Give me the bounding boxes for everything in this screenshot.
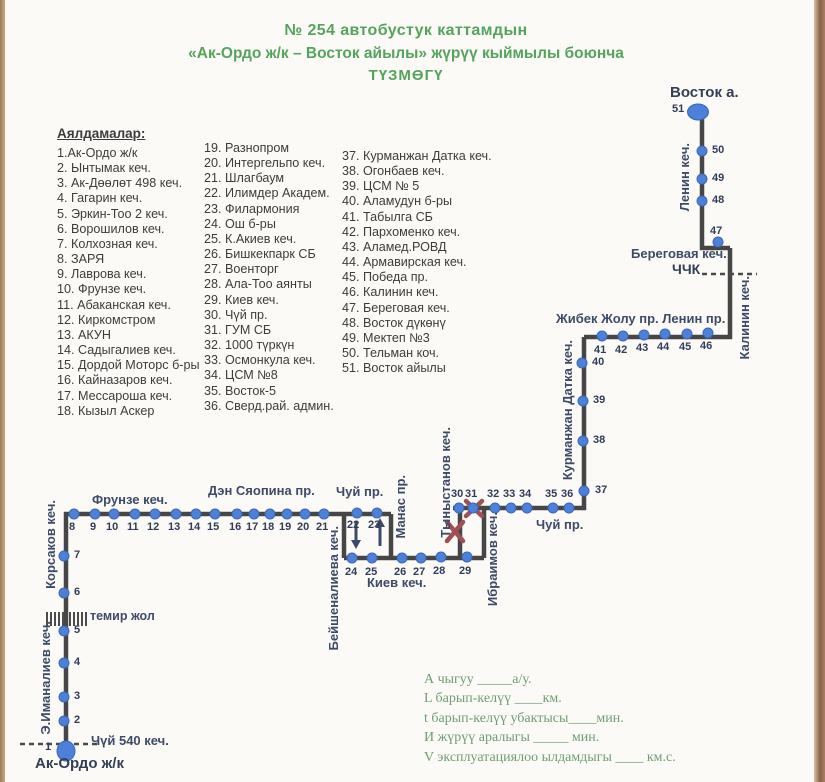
stop-dot-7 xyxy=(59,551,70,562)
street-label: Чуй пр. xyxy=(536,517,583,532)
stop-dot-10 xyxy=(109,509,120,520)
route-scheme-page: № 254 автобустук каттамдын «Ак-Ордо ж/к … xyxy=(0,0,825,782)
stop-dot-21 xyxy=(319,509,330,520)
arrow-down-head-icon xyxy=(351,540,361,549)
street-label: Корсаков кеч. xyxy=(43,500,58,589)
street-label: Восток а. xyxy=(670,84,739,101)
note-line: L барып-келүү ____км. xyxy=(424,689,676,708)
stop-number: 5 xyxy=(74,624,80,636)
stop-dot-40 xyxy=(577,358,588,369)
stop-dot-50 xyxy=(697,146,708,157)
stop-dot-8 xyxy=(69,509,80,520)
stop-number: 47 xyxy=(710,225,722,237)
stop-number: 18 xyxy=(262,521,274,533)
street-label: Курманжан Датка кеч. xyxy=(560,340,575,480)
stop-dot-26 xyxy=(397,553,408,564)
route-map: 1234567891011121314151617181920212223242… xyxy=(0,0,825,782)
stop-dot-20 xyxy=(300,509,311,520)
stop-number: 49 xyxy=(712,172,724,184)
stop-dot-38 xyxy=(578,436,589,447)
stop-number: 36 xyxy=(561,488,573,500)
street-label: Ибраимов кеч. xyxy=(485,512,500,606)
stop-number: 7 xyxy=(74,549,80,561)
street-label: Калинин кеч. xyxy=(737,276,752,359)
stop-dot-49 xyxy=(697,174,708,185)
street-label: Жибек Жолу пр. Ленин пр. xyxy=(556,311,725,326)
stop-dot-12 xyxy=(150,509,161,520)
stop-dot-16 xyxy=(232,509,243,520)
stop-dot-48 xyxy=(697,196,708,207)
stop-dot-2 xyxy=(59,716,70,727)
note-line: И жүрүү аралыгы _____ мин. xyxy=(424,728,676,747)
stop-number: 43 xyxy=(636,342,648,354)
street-label: Дэн Сяопина пр. xyxy=(208,483,315,498)
stop-dot-18 xyxy=(265,509,276,520)
stop-number: 13 xyxy=(168,521,180,533)
stop-number: 33 xyxy=(503,488,515,500)
stop-number: 1 xyxy=(45,741,51,753)
stop-number: 31 xyxy=(465,488,477,500)
stop-number: 11 xyxy=(127,521,139,533)
stop-dot-24 xyxy=(347,553,358,564)
stop-number: 22 xyxy=(347,519,359,531)
note-line: V эксплуатациялоо ылдамдыгы ____ км.с. xyxy=(424,748,676,767)
stop-number: 16 xyxy=(229,521,241,533)
street-label: Манас пр. xyxy=(393,475,408,539)
stop-number: 4 xyxy=(74,656,80,668)
stop-dot-46 xyxy=(703,328,714,339)
stop-number: 12 xyxy=(147,521,159,533)
stop-dot-4 xyxy=(59,658,70,669)
stop-number: 37 xyxy=(595,484,607,496)
stop-number: 14 xyxy=(188,521,200,533)
stop-dot-42 xyxy=(618,331,629,342)
stop-dot-35 xyxy=(548,503,559,514)
stop-dot-30 xyxy=(454,503,465,514)
stop-dot-3 xyxy=(59,692,70,703)
stop-dot-11 xyxy=(130,509,141,520)
street-label: Чүй 540 кеч. xyxy=(91,733,169,748)
stop-number: 28 xyxy=(433,565,445,577)
stop-dot-28 xyxy=(436,552,447,563)
stop-number: 38 xyxy=(593,434,605,446)
stop-number: 15 xyxy=(207,521,219,533)
stop-number: 32 xyxy=(487,488,499,500)
stop-dot-43 xyxy=(639,330,650,341)
stop-dot-22 xyxy=(352,508,363,519)
stop-dot-14 xyxy=(191,509,202,520)
stop-number: 20 xyxy=(297,521,309,533)
stop-dot-25 xyxy=(367,553,378,564)
street-label: Фрунзе кеч. xyxy=(92,492,168,507)
stop-dot-5 xyxy=(59,626,70,637)
note-line: t барып-келүү убактысы____мин. xyxy=(424,709,676,728)
stop-number: 6 xyxy=(74,586,80,598)
stop-number: 3 xyxy=(74,690,80,702)
stop-dot-19 xyxy=(282,509,293,520)
stop-number: 45 xyxy=(679,341,691,353)
stop-dot-27 xyxy=(416,553,427,564)
stop-number: 46 xyxy=(700,340,712,352)
stop-number: 35 xyxy=(545,488,557,500)
stop-number: 40 xyxy=(592,356,604,368)
street-label: темир жол xyxy=(90,609,155,623)
stop-number: 51 xyxy=(672,103,684,115)
stop-dot-37 xyxy=(579,486,590,497)
stop-number: 41 xyxy=(594,344,606,356)
stop-number: 34 xyxy=(519,488,531,500)
stop-dot-23 xyxy=(372,508,383,519)
street-label: Береговая кеч. xyxy=(631,246,727,261)
stop-dot-33 xyxy=(506,503,517,514)
street-label: Киев кеч. xyxy=(367,575,426,590)
stop-number: 44 xyxy=(657,341,669,353)
stop-dot-6 xyxy=(59,588,70,599)
stop-number: 2 xyxy=(74,714,80,726)
street-label: Бейшеналиева кеч. xyxy=(326,526,341,650)
stop-number: 10 xyxy=(106,521,118,533)
stop-dot-36 xyxy=(564,503,575,514)
stop-number: 24 xyxy=(345,566,357,578)
stop-number: 50 xyxy=(712,144,724,156)
stop-number: 17 xyxy=(246,521,258,533)
stop-dot-39 xyxy=(578,396,589,407)
stop-dot-13 xyxy=(171,509,182,520)
stop-dot-41 xyxy=(597,331,608,342)
street-label: ЧЧК xyxy=(672,261,700,277)
stop-dot-51 xyxy=(687,104,709,121)
stop-number: 19 xyxy=(279,521,291,533)
stop-number: 9 xyxy=(90,521,96,533)
stop-dot-15 xyxy=(210,509,221,520)
stop-number: 23 xyxy=(368,519,380,531)
street-label: Тыныстанов кеч. xyxy=(438,427,453,538)
stop-dot-31 xyxy=(468,503,479,514)
street-label: Ленин кеч. xyxy=(677,143,692,211)
stop-dot-9 xyxy=(90,509,101,520)
street-label: Ак-Ордо ж/к xyxy=(35,755,124,772)
stop-dot-34 xyxy=(522,503,533,514)
stop-number: 48 xyxy=(712,194,724,206)
stop-number: 8 xyxy=(69,521,75,533)
stop-dot-44 xyxy=(660,329,671,340)
operation-notes: А чыгуу _____а/у.L барып-келүү ____км.t … xyxy=(424,670,676,767)
stop-number: 29 xyxy=(459,565,471,577)
street-label: Э.Иманалиев кеч. xyxy=(38,621,53,735)
route-polyline xyxy=(66,113,730,751)
note-line: А чыгуу _____а/у. xyxy=(424,670,676,689)
stop-dot-29 xyxy=(462,552,473,563)
stop-dot-17 xyxy=(249,509,260,520)
street-label: Чуй пр. xyxy=(336,484,383,499)
stop-dot-45 xyxy=(682,329,693,340)
stop-number: 39 xyxy=(593,394,605,406)
stop-number: 42 xyxy=(615,344,627,356)
